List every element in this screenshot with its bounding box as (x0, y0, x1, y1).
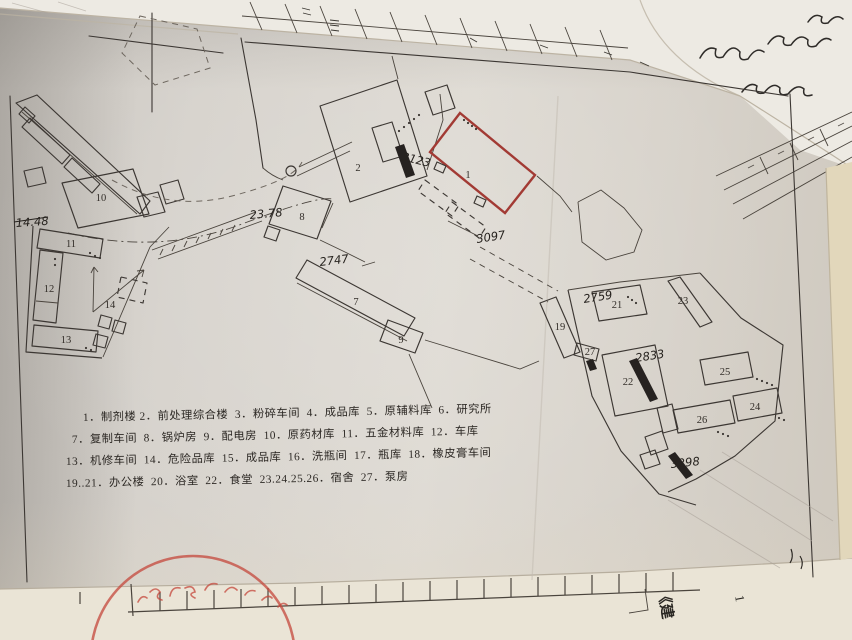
legend-line-3: 13．机修车间 14．危险品库 15．成品库 16．洗瓶间 17．瓶库 18．橡… (66, 445, 492, 468)
annotation-3298: 3298 (670, 454, 701, 471)
legend-line-1: 1．制剂楼 2．前处理综合楼 3．粉碎车间 4．成品库 5．原辅料库 6．研究所 (83, 401, 492, 424)
building-1-highlighted: 1 (418, 113, 642, 302)
annotation-2747: 2747 (319, 251, 350, 269)
annotation-14-48: 14.48 (15, 214, 49, 230)
building-label: 12 (44, 284, 55, 295)
annotation-23-78: 23.78 (249, 205, 283, 222)
filled-bar-2833 (629, 358, 658, 402)
building-label: 19 (555, 322, 566, 333)
central-cluster: 2 8 7 9 (241, 38, 539, 408)
building-label: 23 (678, 296, 689, 307)
site-plan-drawing: 《建 1 (0, 0, 852, 640)
buildings-11-14-cluster: 11 12 13 14 (26, 226, 147, 358)
building-label: 10 (96, 193, 107, 204)
building-label: 8 (299, 212, 304, 223)
survey-cross (89, 13, 223, 112)
legend: 1．制剂楼 2．前处理综合楼 3．粉碎车间 4．成品库 5．原辅料库 6．研究所… (66, 401, 492, 490)
building-label: 7 (353, 297, 358, 308)
building-label: 21 (612, 300, 623, 311)
building-label: 1 (465, 170, 470, 181)
drawing-frame (10, 42, 833, 582)
building-label: 27 (585, 347, 596, 358)
legend-line-4: 19..21．办公楼 20．浴室 22．食堂 23.24.25.26．宿舍 27… (66, 469, 409, 490)
roads (68, 162, 335, 357)
dashed-parcel-outline (122, 16, 210, 85)
underlying-sheet-right-edge (790, 162, 852, 569)
underlying-sheet-top (0, 0, 852, 219)
left-wedge-buildings (16, 95, 150, 214)
annotation-2833: 2833 (634, 347, 665, 365)
building-label: 14 (105, 300, 116, 311)
paper-crease (532, 96, 558, 580)
building-label: 11 (66, 239, 76, 250)
right-cluster: 19 21 22 23 24 25 26 27 (540, 273, 785, 505)
building-label: 13 (61, 335, 72, 346)
building-label: 2 (355, 163, 360, 174)
building-label: 22 (623, 377, 634, 388)
legend-line-2: 7．复制车间 8．锅炉房 9．配电房 10．原药材库 11．五金材料库 12．车… (72, 423, 479, 446)
annotation-3097: 3097 (475, 227, 507, 246)
annotation-2759: 2759 (582, 288, 613, 306)
underlying-sheet-bottom: 《建 1 (0, 556, 852, 640)
building-label: 25 (720, 367, 731, 378)
photo-of-site-plan: 《建 1 (0, 0, 852, 640)
building-label: 24 (750, 402, 761, 413)
building-label: 9 (398, 335, 403, 346)
building-label: 26 (697, 415, 708, 426)
